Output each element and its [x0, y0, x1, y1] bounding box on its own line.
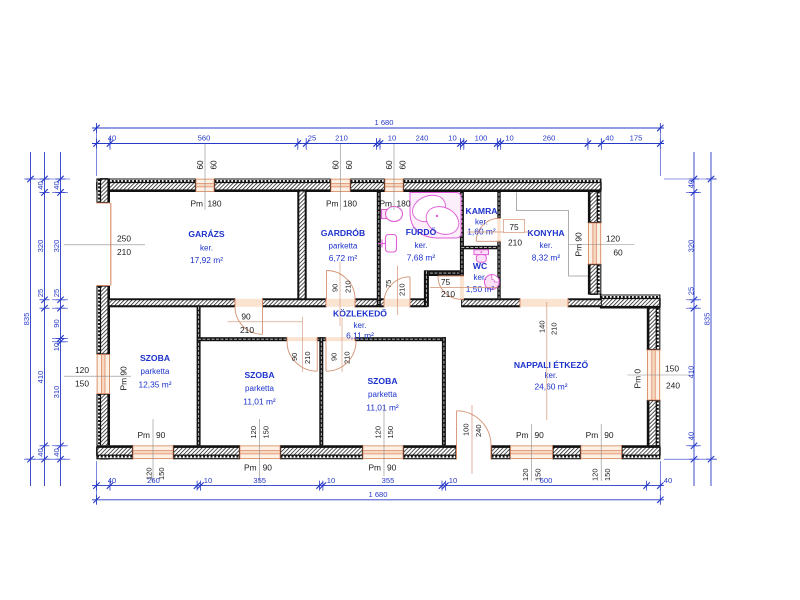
svg-text:835: 835	[703, 313, 712, 326]
svg-text:40: 40	[664, 476, 672, 485]
svg-text:60: 60	[210, 160, 219, 170]
svg-text:320: 320	[687, 240, 696, 253]
svg-text:KAMRA: KAMRA	[466, 206, 498, 216]
svg-text:Pm: Pm	[190, 199, 203, 209]
svg-text:Pm 90: Pm 90	[574, 232, 584, 257]
svg-text:90: 90	[290, 353, 299, 361]
svg-text:210: 210	[117, 247, 131, 257]
svg-text:100: 100	[462, 423, 471, 436]
svg-text:40: 40	[52, 181, 61, 189]
svg-text:10: 10	[505, 134, 513, 143]
svg-text:Pm: Pm	[244, 463, 257, 473]
svg-text:Pm 90: Pm 90	[119, 366, 129, 391]
svg-text:40: 40	[36, 448, 45, 456]
svg-text:180: 180	[343, 199, 357, 209]
svg-text:40: 40	[36, 181, 45, 189]
svg-text:60: 60	[399, 160, 408, 170]
svg-text:10: 10	[388, 134, 396, 143]
svg-text:1 680: 1 680	[374, 118, 393, 127]
svg-text:6,72 m²: 6,72 m²	[329, 253, 358, 263]
svg-text:835: 835	[22, 313, 31, 326]
svg-text:11,01 m²: 11,01 m²	[366, 403, 399, 413]
svg-text:180: 180	[208, 199, 222, 209]
svg-text:210: 210	[240, 325, 254, 335]
svg-text:ker.: ker.	[415, 241, 428, 250]
svg-text:Pm: Pm	[586, 430, 599, 440]
svg-text:40: 40	[687, 180, 696, 188]
svg-text:KÖZLEKEDŐ: KÖZLEKEDŐ	[333, 308, 387, 319]
svg-text:560: 560	[198, 134, 211, 143]
svg-text:100: 100	[475, 134, 488, 143]
svg-text:210: 210	[344, 280, 353, 293]
svg-text:210: 210	[441, 289, 455, 299]
svg-text:240: 240	[666, 381, 680, 391]
svg-text:60: 60	[345, 160, 354, 170]
svg-text:ker.: ker.	[474, 273, 487, 282]
svg-text:10: 10	[204, 476, 212, 485]
svg-text:40: 40	[108, 476, 116, 485]
svg-text:1,50 m²: 1,50 m²	[466, 284, 495, 294]
svg-text:Pm 0: Pm 0	[633, 369, 643, 389]
svg-text:90: 90	[52, 319, 61, 327]
svg-text:60: 60	[332, 160, 341, 170]
svg-text:SZOBA: SZOBA	[367, 376, 397, 386]
svg-text:120: 120	[374, 426, 383, 439]
svg-text:parketta: parketta	[329, 242, 358, 251]
svg-text:210: 210	[550, 322, 559, 335]
svg-text:600: 600	[540, 476, 553, 485]
svg-text:NAPPALI ÉTKEZŐ: NAPPALI ÉTKEZŐ	[514, 359, 589, 370]
svg-text:ker.: ker.	[200, 244, 213, 253]
svg-text:410: 410	[36, 371, 45, 384]
svg-text:150: 150	[75, 379, 89, 389]
svg-text:180: 180	[397, 199, 411, 209]
svg-text:25: 25	[308, 134, 316, 143]
svg-text:310: 310	[52, 386, 61, 399]
svg-text:Pm: Pm	[326, 199, 339, 209]
svg-text:150: 150	[603, 468, 612, 481]
svg-text:150: 150	[386, 426, 395, 439]
svg-text:10: 10	[52, 343, 61, 351]
svg-text:25: 25	[687, 287, 696, 295]
svg-text:10: 10	[449, 476, 457, 485]
svg-text:140: 140	[538, 320, 547, 333]
svg-text:11,01 m²: 11,01 m²	[243, 397, 276, 407]
svg-text:260: 260	[147, 476, 160, 485]
svg-text:Pm: Pm	[516, 430, 529, 440]
svg-text:25: 25	[36, 289, 45, 297]
svg-text:210: 210	[343, 351, 352, 364]
svg-text:320: 320	[36, 240, 45, 253]
svg-text:60: 60	[196, 160, 205, 170]
svg-text:7,68 m²: 7,68 m²	[407, 253, 436, 263]
svg-text:75: 75	[509, 222, 519, 232]
svg-text:210: 210	[303, 351, 312, 364]
svg-text:90: 90	[241, 312, 251, 322]
svg-text:240: 240	[474, 424, 483, 437]
svg-text:8,32 m²: 8,32 m²	[532, 253, 561, 263]
svg-text:KONYHA: KONYHA	[527, 228, 564, 238]
svg-text:40: 40	[605, 134, 613, 143]
svg-text:90: 90	[263, 463, 273, 473]
svg-text:175: 175	[630, 134, 643, 143]
svg-text:40: 40	[687, 432, 696, 440]
svg-text:90: 90	[604, 430, 614, 440]
svg-text:320: 320	[52, 240, 61, 253]
svg-text:parketta: parketta	[245, 384, 274, 393]
svg-text:SZOBA: SZOBA	[244, 370, 274, 380]
svg-text:150: 150	[665, 364, 679, 374]
svg-text:17,92 m²: 17,92 m²	[190, 255, 223, 265]
svg-text:210: 210	[398, 283, 407, 296]
svg-text:120: 120	[591, 468, 600, 481]
svg-text:260: 260	[543, 134, 556, 143]
svg-text:ker.: ker.	[354, 321, 367, 330]
svg-text:10: 10	[327, 476, 335, 485]
svg-text:90: 90	[535, 430, 545, 440]
svg-text:60: 60	[385, 160, 394, 170]
svg-text:120: 120	[521, 468, 530, 481]
svg-text:10: 10	[448, 134, 456, 143]
svg-text:ker.: ker.	[540, 241, 553, 250]
svg-text:Pm: Pm	[137, 430, 150, 440]
svg-text:120: 120	[75, 365, 89, 375]
svg-text:25: 25	[52, 289, 61, 297]
svg-text:75: 75	[384, 280, 393, 288]
svg-text:12,35 m²: 12,35 m²	[138, 380, 171, 390]
svg-text:GARDRÓB: GARDRÓB	[321, 227, 365, 238]
svg-text:90: 90	[387, 463, 397, 473]
svg-text:355: 355	[382, 476, 395, 485]
svg-text:410: 410	[687, 366, 696, 379]
svg-text:40: 40	[52, 448, 61, 456]
svg-text:WC: WC	[473, 261, 487, 271]
svg-text:GARÁZS: GARÁZS	[188, 229, 225, 239]
svg-text:6,11 m²: 6,11 m²	[346, 331, 374, 341]
svg-text:250: 250	[117, 234, 131, 244]
svg-text:ker.: ker.	[475, 218, 488, 227]
svg-text:1 680: 1 680	[368, 490, 387, 499]
svg-text:90: 90	[156, 430, 166, 440]
svg-text:120: 120	[249, 426, 258, 439]
svg-text:75: 75	[441, 277, 451, 287]
svg-text:120: 120	[606, 234, 620, 244]
svg-text:90: 90	[330, 353, 339, 361]
svg-text:Pm: Pm	[368, 463, 381, 473]
svg-text:1,60 m²: 1,60 m²	[467, 227, 496, 237]
svg-text:355: 355	[253, 476, 266, 485]
svg-text:210: 210	[335, 134, 348, 143]
svg-text:40: 40	[108, 134, 116, 143]
svg-text:24,60 m²: 24,60 m²	[534, 381, 567, 391]
svg-text:Pm: Pm	[379, 199, 392, 209]
svg-text:90: 90	[331, 284, 340, 292]
svg-text:FÜRDŐ: FÜRDŐ	[406, 226, 437, 237]
svg-text:60: 60	[613, 248, 623, 258]
svg-text:SZOBA: SZOBA	[140, 353, 170, 363]
svg-text:210: 210	[508, 238, 522, 248]
svg-text:parketta: parketta	[141, 367, 170, 376]
svg-text:240: 240	[416, 134, 429, 143]
svg-text:150: 150	[262, 426, 271, 439]
svg-text:parketta: parketta	[368, 390, 397, 399]
